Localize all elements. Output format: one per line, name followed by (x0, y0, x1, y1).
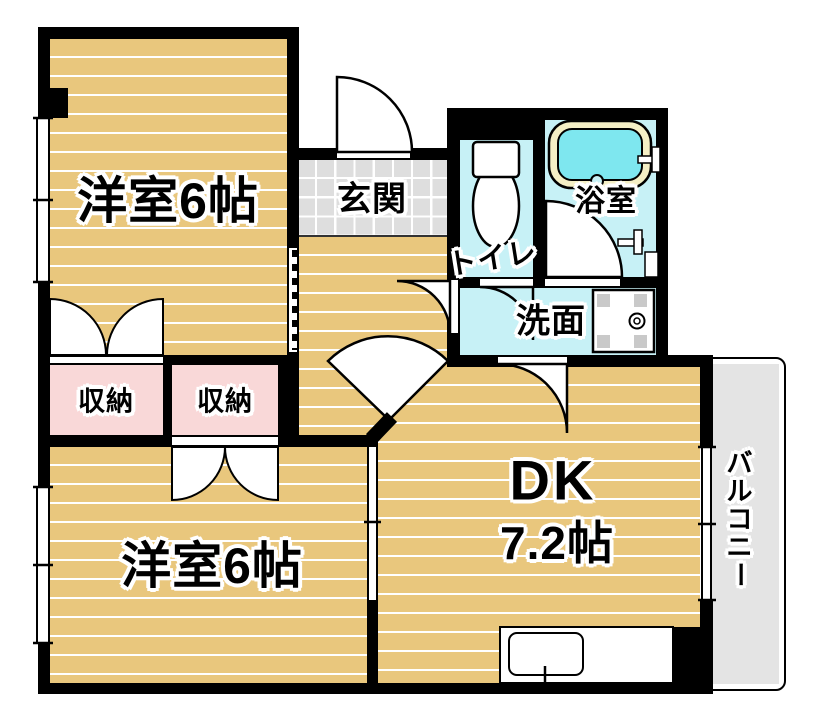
floor-plan: 洋室6帖 玄関 トイレ 浴室 洗面 収納 収納 洋室6帖 DK 7.2帖 バルコ… (0, 0, 819, 721)
closet-right-doors (172, 447, 278, 500)
shower-faucet-icon (618, 230, 658, 277)
west-room-top-label: 洋室6帖 (77, 161, 259, 233)
hall-dk-door-arc (328, 336, 448, 420)
closet-left-label: 収納 (78, 380, 134, 419)
entrance-door-arc (337, 77, 412, 152)
west-room-bottom-label: 洋室6帖 (121, 526, 303, 598)
bathroom-label: 浴室 (575, 176, 637, 220)
wall-diagonal (371, 417, 392, 439)
closet-right-label: 収納 (197, 380, 253, 419)
closet-left-doors (50, 299, 163, 355)
washroom-door-arc (397, 281, 450, 334)
washroom-label: 洗面 (516, 294, 586, 343)
balcony-label: バルコニー (726, 449, 753, 589)
entrance-label: 玄関 (337, 172, 407, 221)
fixtures-layer (0, 0, 819, 721)
kitchen-counter (500, 627, 673, 687)
dk-door-arc (498, 364, 567, 433)
dk-size-label: 7.2帖 (500, 507, 614, 573)
washing-machine-icon (593, 290, 654, 352)
dk-label: DK (510, 448, 597, 513)
